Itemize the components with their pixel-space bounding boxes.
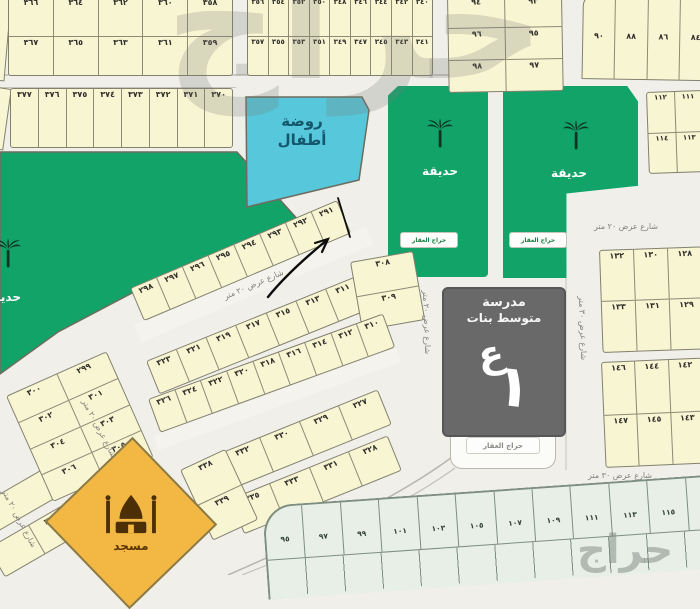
plot-map: { "watermark": { "main": "حراج", "corner… (0, 0, 700, 575)
plot-cell: ٣٤٧ (350, 37, 371, 76)
plot-number: ٣٢٣ (156, 355, 173, 369)
plot-row: ١٤٧١٤٥١٤٣ (604, 410, 700, 467)
plot-cell: ١١٤ (648, 133, 676, 173)
palm-icon (562, 120, 590, 152)
plot-number: ١١٥ (661, 508, 675, 517)
plot-cell: ٣٥٠ (309, 0, 330, 36)
plot-number: ٣٣٣ (284, 475, 301, 489)
plot-number: ٣٠٤ (49, 437, 66, 451)
plot-number: ٣١٥ (275, 307, 292, 321)
plot-cell: ٩٩ (340, 500, 382, 555)
plot-number: ٣٢٠ (234, 366, 251, 379)
plot-number: ٣٦١ (158, 39, 173, 48)
plot-number: ٢٩٢ (292, 217, 309, 231)
plot-number: ٣١٣ (305, 295, 322, 309)
plot-column-308-309: ٣٠٨٣٠٩ (350, 251, 425, 331)
plot-number: ٣٥٢ (292, 0, 305, 7)
plot-cell: ٣٥٥ (268, 37, 289, 76)
plot-number: ٣١١ (334, 283, 351, 297)
plot-number: ٣١٠ (364, 319, 381, 332)
plot-cell: ١١٥ (646, 478, 688, 533)
plot-cell: ١٤٥ (637, 413, 673, 466)
mosque-label: مسجد (113, 539, 148, 553)
plot-cell: ٣٤٦ (350, 0, 371, 36)
plot-block-142-147: ١٤٦١٤٤١٤٢١٤٧١٤٥١٤٣ (601, 358, 700, 468)
plot-cell: ٣٦٥ (53, 37, 98, 76)
plot-strip-370-377: ٣٧٧٣٧٦٣٧٥٣٧٤٣٧٣٣٧٢٣٧١٣٧٠ (10, 88, 233, 148)
plot-number: ١١١ (681, 93, 694, 101)
plot-number: ١٤٤ (644, 362, 659, 371)
plot-cell: ٩٥ (505, 27, 563, 59)
plot-number: ١١٣ (683, 134, 696, 142)
plot-cell: ٩٧ (301, 503, 343, 558)
plot-number: ٢٩٥ (215, 249, 232, 263)
plot-block-128-133: ١٣٢١٣٠١٢٨١٣٣١٣١١٢٩ (599, 246, 700, 353)
plot-cell: ٣٧٥ (66, 89, 94, 147)
street-label-right-bottom: شارع عرض ٣٠ متر (588, 471, 652, 480)
plot-number: ١٠٥ (470, 521, 484, 530)
plot-number: ٣٥٣ (292, 39, 305, 47)
garden-2-label: حديقة (551, 166, 587, 180)
plot-number: ٣٣٢ (234, 445, 251, 459)
plot-number: ١٠١ (393, 527, 407, 536)
plot-number: ١٢٩ (679, 301, 694, 310)
plot-number: ٣٥٦ (251, 0, 264, 7)
plot-cell: ١٠٧ (493, 489, 535, 544)
plot-number: ١٠٩ (546, 516, 560, 525)
plot-row: ٣٥٦٣٥٤٣٥٢٣٥٠٣٤٨٣٤٦٣٤٤٣٤٢٣٤٠ (248, 0, 432, 36)
plot-cell: ١٠٩ (531, 486, 573, 541)
plot-number: ٣٥٤ (272, 0, 285, 7)
palm-icon-glyph (0, 238, 22, 270)
plot-number: ٣٤٦ (354, 0, 367, 7)
plot-cell: ١١٧ (685, 476, 700, 531)
plot-cell: ١٠٣ (416, 495, 458, 550)
plot-cell: ٣٤١ (412, 37, 433, 76)
plot-number: ٣٤٢ (395, 0, 408, 7)
plot-number: ٩٥ (529, 29, 539, 38)
plot-block-340-357: ٣٥٦٣٥٤٣٥٢٣٥٠٣٤٨٣٤٦٣٤٤٣٤٢٣٤٠٣٥٧٣٥٥٣٥٣٣٥١٣… (247, 0, 433, 76)
plot-row: ٣٦٦٣٦٤٣٦٢٣٦٠٣٥٨ (9, 0, 232, 36)
street-label-right-top: شارع عرض ٢٠ متر (594, 222, 658, 231)
plot-cell: ٣٥٣ (288, 37, 309, 76)
plot-cell: ٣٦٧ (9, 37, 53, 76)
plot-cell: ٣٦٠ (142, 0, 187, 36)
plot-number: ٣٦٢ (113, 0, 128, 8)
plot-row: ١١٢١١١ (647, 91, 700, 132)
plot-cell: ١٢٩ (669, 298, 700, 349)
plot-cell: ٣٦١ (142, 37, 187, 76)
plot-cell: ٣٥٦ (248, 0, 268, 36)
plot-number: ٣٤٣ (395, 39, 408, 47)
plot-cell: ١٤٧ (604, 414, 639, 467)
plot-cell: ٣٦٣ (98, 37, 143, 76)
plot-cell: ١٢٨ (667, 247, 700, 298)
plot-cell: ٩٤ (448, 0, 505, 28)
plot-number: ٣٧٣ (128, 91, 143, 100)
plot-cell: ١٣٢ (600, 250, 635, 301)
plot-number: ١٢٨ (677, 250, 692, 259)
plot-cell: ١٤٦ (602, 362, 637, 415)
plot-cell: ٣٤٨ (329, 0, 350, 36)
palm-icon (426, 118, 454, 150)
plot-cell: ٩٨ (449, 60, 506, 92)
plot-number: ٩٧ (529, 61, 539, 70)
plot-number: ١٠٧ (508, 519, 522, 528)
plot-number: ١١٣ (623, 511, 637, 520)
plot-cell: ٣٥٢ (288, 0, 309, 36)
plot-cell: ٩٣ (504, 0, 562, 27)
palm-icon-glyph (562, 120, 590, 152)
plot-cell: ٨٦ (646, 0, 680, 80)
plot-cell: ٩٦ (449, 28, 506, 60)
agency-badge-gray: حراج العقار (466, 437, 540, 454)
plot-cell: ٣٤٤ (370, 0, 391, 36)
plot-number: ١٣١ (645, 302, 660, 311)
plot-number: ٣٤٩ (334, 39, 347, 47)
plot-row: ٩٨٩٧ (449, 58, 563, 92)
plot-cell: ١٠٥ (455, 492, 497, 547)
plot-number: ٣٦٥ (68, 39, 83, 48)
plot-block-111-114: ١١٢١١١١١٤١١٣ (646, 90, 700, 174)
plot-number: ٣٢٦ (156, 394, 173, 407)
plot-number: ١٣٢ (609, 252, 624, 261)
plot-number: ٣٧٦ (45, 91, 60, 100)
plot-cell: ٣٥١ (309, 37, 330, 76)
plot-number: ١٤٦ (611, 364, 626, 373)
plot-number: ٣٤١ (416, 39, 429, 47)
plot-cell: ٣٥٨ (187, 0, 232, 36)
plot-number: ٣٥٠ (313, 0, 326, 7)
plot-number: ١٤٢ (678, 361, 693, 370)
plot-number: ٣٠١ (87, 389, 104, 403)
plot-number: ٩٨ (472, 62, 482, 71)
school-label-line2: متوسط بنات (444, 311, 564, 325)
plot-number: ٣٢٢ (208, 375, 225, 388)
plot-row: ٣٦٧٣٦٥٣٦٣٣٦١٣٥٩ (9, 36, 232, 76)
plot-number: ٢٩٦ (189, 260, 206, 274)
plot-number: ٣٦٠ (158, 0, 173, 8)
plot-number: ٢٩٨ (138, 282, 155, 296)
plot-cell: ٣٤٣ (391, 37, 412, 76)
plot-cell: ١١١ (674, 91, 700, 131)
plot-cell: ٣٧٦ (38, 89, 66, 147)
plot-number: ٣٠٩ (381, 292, 397, 303)
plot-number: ٩٩ (357, 530, 367, 539)
plot-cell: ١٣٣ (602, 301, 637, 352)
plot-cell: ١٠١ (378, 497, 420, 552)
palm-icon (0, 238, 22, 270)
plot-number: ٩٠ (594, 32, 604, 41)
plot-number: ٣٧١ (184, 91, 199, 100)
plot-number: ٣٢٨ (362, 443, 379, 457)
plot-number: ٣٧٤ (100, 91, 115, 100)
plot-number: ٣١٢ (338, 328, 355, 341)
garden-1-label: حديقة (422, 164, 458, 178)
plot-row: ١٣٣١٣١١٢٩ (602, 297, 700, 351)
plot-number: ٣٦٧ (24, 39, 39, 48)
plot-row: ١٤٦١٤٤١٤٢ (602, 359, 700, 415)
kindergarten-label-line2: أطفال (262, 131, 342, 150)
plot-number: ١١٢ (654, 94, 667, 102)
plot-cell: ١٣٠ (633, 249, 669, 300)
plot-number: ١٤٥ (647, 415, 662, 424)
plot-cell: ٣٧٠ (204, 89, 232, 147)
plot-cell: ١٤٢ (668, 359, 700, 412)
plot-number: ١٤٧ (613, 416, 628, 425)
garden-block-1 (388, 86, 488, 277)
plot-number: ٣٤٤ (375, 0, 388, 7)
plot-number: ٣٢٧ (352, 397, 369, 411)
plot-cell: ٣٦٤ (53, 0, 98, 36)
plot-number: ٣٤٥ (375, 39, 388, 47)
plot-cell: ١٣١ (635, 300, 671, 351)
plot-number: ١٣٠ (643, 251, 658, 260)
plot-cell: ٩٥ (264, 505, 305, 559)
plot-number: ٣٢٩ (313, 413, 330, 427)
plot-cell: ٣٦٦ (9, 0, 53, 36)
plot-number: ٣١٩ (215, 331, 232, 345)
plot-number: ٣٣١ (323, 459, 340, 473)
kindergarten-label: روضة أطفال (262, 112, 342, 150)
plot-cell: ٣٥٧ (248, 37, 268, 76)
plot-cell: ٩٠ (583, 0, 616, 79)
plot-number: ٣٣٩ (214, 494, 231, 508)
plot-cell: ٣٦٢ (98, 0, 143, 36)
plot-cell: ٣٥٤ (268, 0, 289, 36)
plot-number: ٩٥ (280, 535, 290, 544)
plot-cell: ١١٣ (608, 481, 650, 536)
plot-number: ٣٧٢ (156, 91, 171, 100)
kindergarten-label-line1: روضة (262, 112, 342, 131)
plot-number: ٣٥٥ (272, 39, 285, 47)
plot-number: ٩٤ (471, 0, 481, 7)
plot-number: ٩٧ (319, 532, 329, 541)
plot-cell: ١٤٤ (634, 360, 670, 413)
plot-cell: ٣٤٥ (370, 37, 391, 76)
plot-number: ٣٦٣ (113, 39, 128, 48)
plot-number: ٣٢٤ (182, 385, 199, 398)
park-label: حديقة (0, 290, 21, 304)
plot-cell: ١١٢ (647, 92, 675, 132)
plot-number: ٢٩٩ (76, 362, 93, 376)
plot-number: ٣٥٨ (203, 0, 218, 8)
plot-number: ٣٠٢ (38, 411, 55, 425)
plot-number: ٢٩١ (318, 206, 335, 220)
plot-number: ٣٤٠ (416, 0, 429, 7)
mosque-icon (102, 493, 160, 537)
plot-number: ١١٤ (655, 135, 668, 143)
plot-number: ٣٢١ (185, 343, 202, 357)
plot-cell: ٩٧ (505, 59, 563, 91)
plot-row: ٣٥٧٣٥٥٣٥٣٣٥١٣٤٩٣٤٧٣٤٥٣٤٣٣٤١ (248, 36, 432, 76)
mosque-content: مسجد (102, 493, 160, 553)
plot-cell: ١١٣ (675, 132, 700, 172)
plot-number: ٣١٧ (245, 319, 262, 333)
plot-number: ٨٦ (658, 33, 668, 42)
plot-row: ١١٤١١٣ (648, 131, 700, 173)
plot-number: ٣٠٠ (26, 384, 43, 398)
plot-number: ١٠٣ (431, 524, 445, 533)
plot-cell: ٣٥٩ (187, 37, 232, 76)
plot-number: ١١١ (585, 513, 599, 522)
plot-row: ٩٤٩٣ (448, 0, 562, 28)
school-label-line1: مدرسة (444, 295, 564, 310)
plot-block-84-90: ٩٠٨٨٨٦٨٤ (582, 0, 700, 81)
plot-number: ٣٦٦ (24, 0, 39, 8)
plot-number: ٣١٨ (260, 357, 277, 370)
plot-cell: ٣٤٠ (412, 0, 433, 36)
plot-cell: ٣٧٤ (93, 89, 121, 147)
plot-cell: ١٤٣ (670, 411, 700, 464)
plot-number: ٣٣٠ (274, 429, 291, 443)
plot-number: ٢٩٣ (267, 228, 284, 242)
plot-cell: ٨٨ (614, 0, 648, 79)
plot-row: ٩٦٩٥ (449, 26, 563, 60)
plot-number: ٨٤ (691, 34, 700, 43)
plot-cell: ٣٤٩ (329, 37, 350, 76)
plot-number: ٨٨ (626, 33, 636, 42)
plot-number: ٣٦٤ (68, 0, 83, 8)
plot-cell: ٣٧٧ (11, 89, 38, 147)
plot-block-93-98: ٩٤٩٣٩٦٩٥٩٨٩٧ (447, 0, 564, 93)
plot-cell: ٨٤ (678, 0, 700, 80)
plot-number: ٣١٤ (312, 338, 329, 351)
agency-badge: حراج العقار (400, 232, 458, 248)
plot-cell: ٣٧١ (177, 89, 205, 147)
plot-number: ٣٠٨ (375, 258, 391, 269)
plot-number: ٣٤٧ (354, 39, 367, 47)
plot-number: ٣١٦ (286, 347, 303, 360)
plot-number: ٣٠٦ (61, 463, 78, 477)
palm-icon-glyph (426, 118, 454, 150)
plot-number: ٣٧٠ (211, 91, 226, 100)
plot-number: ١٤٣ (680, 413, 695, 422)
plot-number: ٩٦ (472, 30, 482, 39)
agency-badge: حراج العقار (509, 232, 567, 248)
plot-number: ٣٧٥ (73, 91, 88, 100)
plot-cell: ١١١ (570, 484, 612, 539)
plot-number: ٩٣ (528, 0, 538, 6)
plot-row: ١٣٢١٣٠١٢٨ (600, 247, 700, 300)
plot-number: ٣٥١ (313, 39, 326, 47)
plot-number: ٣٧٧ (17, 91, 32, 100)
plot-number: ٣٤٨ (334, 0, 347, 7)
plot-number: ٢٩٤ (241, 238, 258, 252)
plot-cell: ٣٧٢ (149, 89, 177, 147)
plot-cell: ٣٤٢ (391, 0, 412, 36)
plot-number: ٣٥٩ (203, 39, 218, 48)
plot-number: ٣٣٨ (197, 459, 214, 473)
plot-number: ١٣٣ (611, 303, 626, 312)
plot-block-358-367: ٣٦٦٣٦٤٣٦٢٣٦٠٣٥٨٣٦٧٣٦٥٣٦٣٣٦١٣٥٩ (8, 0, 233, 76)
plot-number: ٣٥٧ (251, 39, 264, 47)
plot-cell: ٣٧٣ (121, 89, 149, 147)
plot-number: ٢٩٧ (164, 271, 181, 285)
